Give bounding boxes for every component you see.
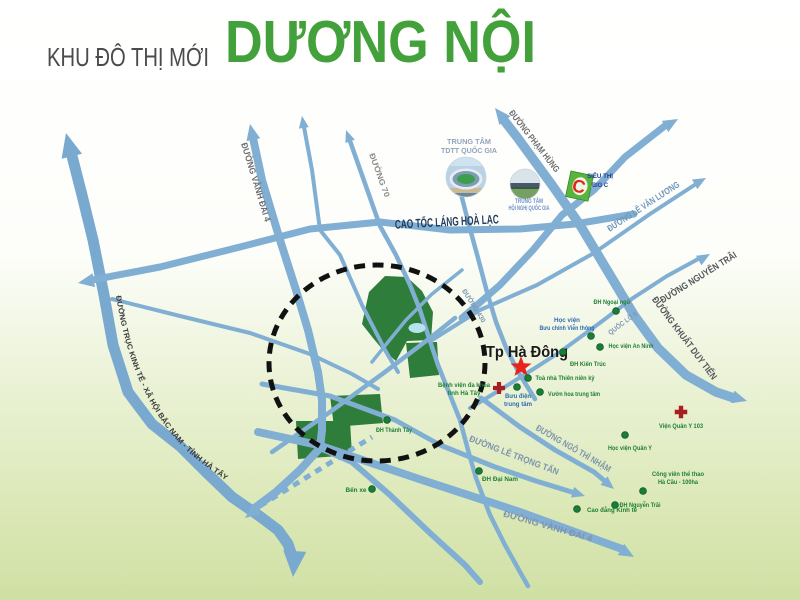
svg-text:Bưu chính Viễn thông: Bưu chính Viễn thông: [540, 323, 595, 332]
svg-text:TDTT QUỐC GIA: TDTT QUỐC GIA: [441, 145, 498, 155]
svg-text:KHU ĐÔ THỊ MỚI: KHU ĐÔ THỊ MỚI: [47, 42, 209, 72]
svg-text:Tp Hà Đông: Tp Hà Đông: [486, 344, 568, 361]
svg-text:Học viện An Ninh: Học viện An Ninh: [609, 343, 654, 350]
svg-text:Hà Cầu - 100ha: Hà Cầu - 100ha: [658, 477, 698, 486]
svg-text:Toà nhà Thiên niên kỷ: Toà nhà Thiên niên kỷ: [536, 375, 595, 382]
svg-text:ĐH Thành Tây: ĐH Thành Tây: [376, 427, 412, 434]
svg-text:trung tâm: trung tâm: [504, 401, 532, 408]
svg-text:Học viện Quân Y: Học viện Quân Y: [608, 445, 652, 452]
svg-text:HỘI NGHỊ QUỐC GIA: HỘI NGHỊ QUỐC GIA: [509, 204, 550, 212]
svg-text:BIG C: BIG C: [592, 182, 608, 189]
svg-text:ĐH Nguyễn Trãi: ĐH Nguyễn Trãi: [620, 500, 661, 509]
svg-text:Viện Quân Y 103: Viện Quân Y 103: [659, 423, 703, 430]
svg-text:TRUNG TÂM: TRUNG TÂM: [447, 137, 491, 146]
svg-text:Bến xe: Bến xe: [346, 486, 367, 494]
svg-text:TRUNG TÂM: TRUNG TÂM: [515, 198, 543, 205]
svg-text:Công viên thể thao: Công viên thể thao: [652, 470, 704, 478]
svg-text:ĐH Ngoại ngữ: ĐH Ngoại ngữ: [594, 299, 631, 306]
svg-text:tỉnh Hà Tây: tỉnh Hà Tây: [448, 390, 481, 397]
svg-text:Bệnh viện đa khoa: Bệnh viện đa khoa: [438, 382, 490, 389]
svg-text:ĐH Kiến Trúc: ĐH Kiến Trúc: [570, 360, 606, 368]
svg-text:Bưu điện: Bưu điện: [505, 393, 531, 400]
svg-text:Vườn hoa trung tâm: Vườn hoa trung tâm: [548, 391, 600, 398]
svg-text:SIÊU THỊ: SIÊU THỊ: [587, 171, 613, 180]
svg-text:ĐH Đại Nam: ĐH Đại Nam: [482, 476, 518, 483]
svg-text:Học viện: Học viện: [554, 317, 580, 324]
svg-text:DƯƠNG NỘI: DƯƠNG NỘI: [225, 8, 536, 75]
